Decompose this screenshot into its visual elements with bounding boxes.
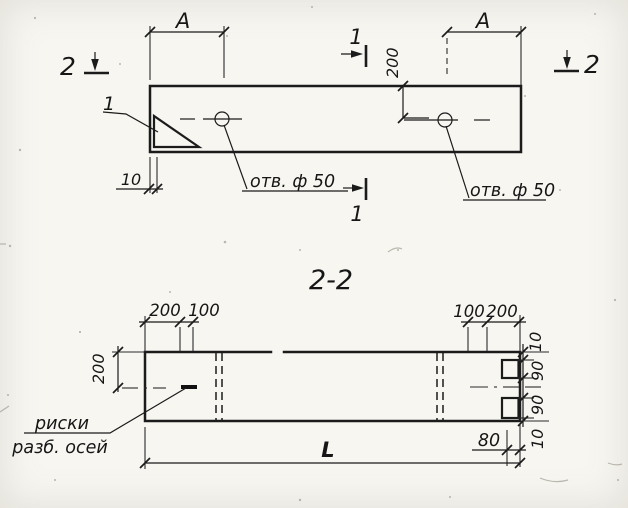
dim-10-label: 10 bbox=[121, 170, 141, 189]
dim-chain-top-right: 100 200 bbox=[453, 302, 526, 351]
dim-80: 80 bbox=[472, 424, 526, 467]
dim-label: 100 bbox=[188, 301, 220, 320]
section-2-right-label: 2 bbox=[584, 50, 600, 79]
top-view: 1 А А bbox=[60, 9, 600, 226]
dim-a-right: А bbox=[442, 9, 526, 85]
scanned-drawing-page: 1 А А bbox=[0, 0, 628, 508]
section-view: 2-2 200 риски разб. осей bbox=[11, 265, 549, 469]
note-line1: риски bbox=[34, 414, 89, 434]
beam-outline bbox=[145, 352, 520, 421]
dim-chain-right: 10 90 90 10 bbox=[518, 332, 549, 449]
dim-chain-top-left: 200 100 bbox=[139, 301, 220, 352]
dim-200-label: 200 bbox=[383, 47, 402, 78]
dim-label: 10 bbox=[526, 332, 545, 352]
dim-80-label: 80 bbox=[478, 431, 500, 451]
corner-triangle-detail bbox=[154, 116, 199, 147]
dim-label: 10 bbox=[528, 429, 547, 449]
dim-label: 100 bbox=[453, 302, 485, 321]
technical-drawing: 1 А А bbox=[0, 0, 628, 508]
note-line2: разб. осей bbox=[11, 438, 108, 458]
section-mark-2-right: 2 bbox=[554, 50, 600, 79]
leader-line bbox=[446, 126, 469, 198]
leader-line bbox=[224, 125, 247, 189]
section-mark-1-top: 1 bbox=[341, 25, 366, 67]
section-mark-1-bottom: 1 bbox=[343, 178, 366, 226]
end-notch-lower bbox=[502, 398, 519, 418]
dim-a-right-label: А bbox=[474, 9, 490, 33]
dim-200-left-label: 200 bbox=[89, 353, 108, 384]
section-view-title: 2-2 bbox=[309, 265, 353, 296]
section-arrow-icon bbox=[91, 59, 99, 71]
section-arrow-icon bbox=[563, 57, 571, 69]
hole-label-left: отв. ф 50 bbox=[250, 172, 335, 192]
hole-callout-left: отв. ф 50 bbox=[224, 125, 348, 192]
dim-label: 200 bbox=[486, 302, 518, 321]
paper-speckles bbox=[0, 6, 622, 501]
hole-callout-right: отв. ф 50 bbox=[446, 126, 555, 201]
dim-a-left-label: А bbox=[174, 9, 190, 33]
hole-label-right: отв. ф 50 bbox=[470, 181, 555, 201]
section-mark-2-left: 2 bbox=[60, 52, 109, 81]
dim-label: 200 bbox=[149, 301, 181, 320]
section-1-top-label: 1 bbox=[349, 25, 362, 49]
dim-label: 90 bbox=[528, 361, 547, 381]
dim-length-l: L bbox=[140, 427, 525, 469]
axis-marks-note: риски разб. осей bbox=[11, 388, 186, 458]
section-arrow-icon bbox=[351, 50, 363, 58]
detail-label: 1 bbox=[103, 93, 115, 115]
section-arrow-icon bbox=[352, 184, 364, 192]
dim-200-left: 200 bbox=[89, 346, 144, 393]
end-notch-upper bbox=[502, 360, 519, 378]
dim-a-left: А bbox=[145, 9, 229, 80]
section-1-bottom-label: 1 bbox=[350, 202, 363, 226]
dim-length-label: L bbox=[321, 438, 334, 462]
section-2-left-label: 2 bbox=[60, 52, 76, 81]
dim-10-top-view: 10 bbox=[116, 157, 163, 194]
dim-label: 90 bbox=[528, 395, 547, 415]
